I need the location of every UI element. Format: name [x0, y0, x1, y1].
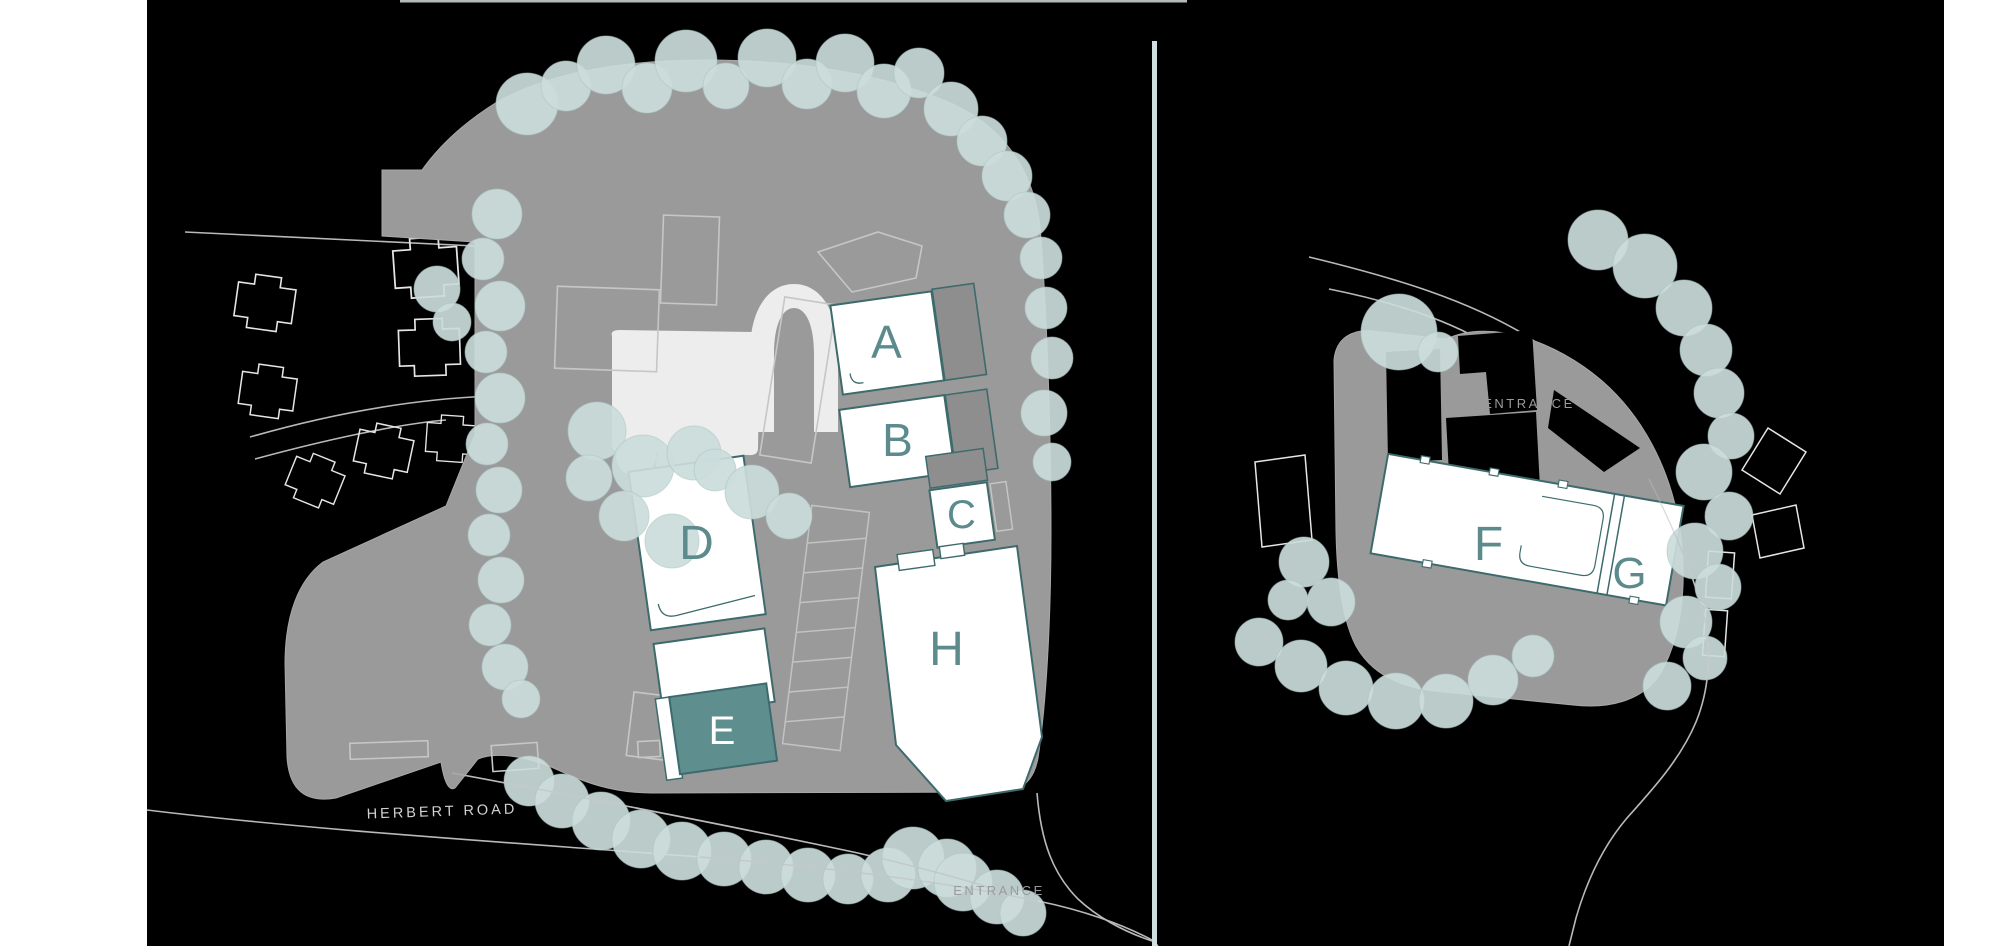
building-label-a: A [871, 316, 903, 368]
building-label-e: E [709, 709, 736, 753]
entrance-label-left: ENTRANCE [953, 883, 1045, 898]
top-rule [400, 0, 1187, 3]
building-label-b: B [882, 414, 914, 466]
building-label-h: H [929, 623, 965, 676]
page: A B C D E H HERBERT ROAD ENTRANCE [0, 0, 2008, 946]
building-label-f: F [1474, 518, 1504, 571]
entrance-label-right: ENTRANCE [1483, 396, 1575, 411]
building-label-c: C [947, 493, 977, 537]
building-label-g: G [1612, 549, 1647, 598]
site-plan-figure: A B C D E H HERBERT ROAD ENTRANCE [0, 0, 2008, 946]
plan-divider [1152, 41, 1157, 946]
building-label-d: D [679, 517, 715, 570]
